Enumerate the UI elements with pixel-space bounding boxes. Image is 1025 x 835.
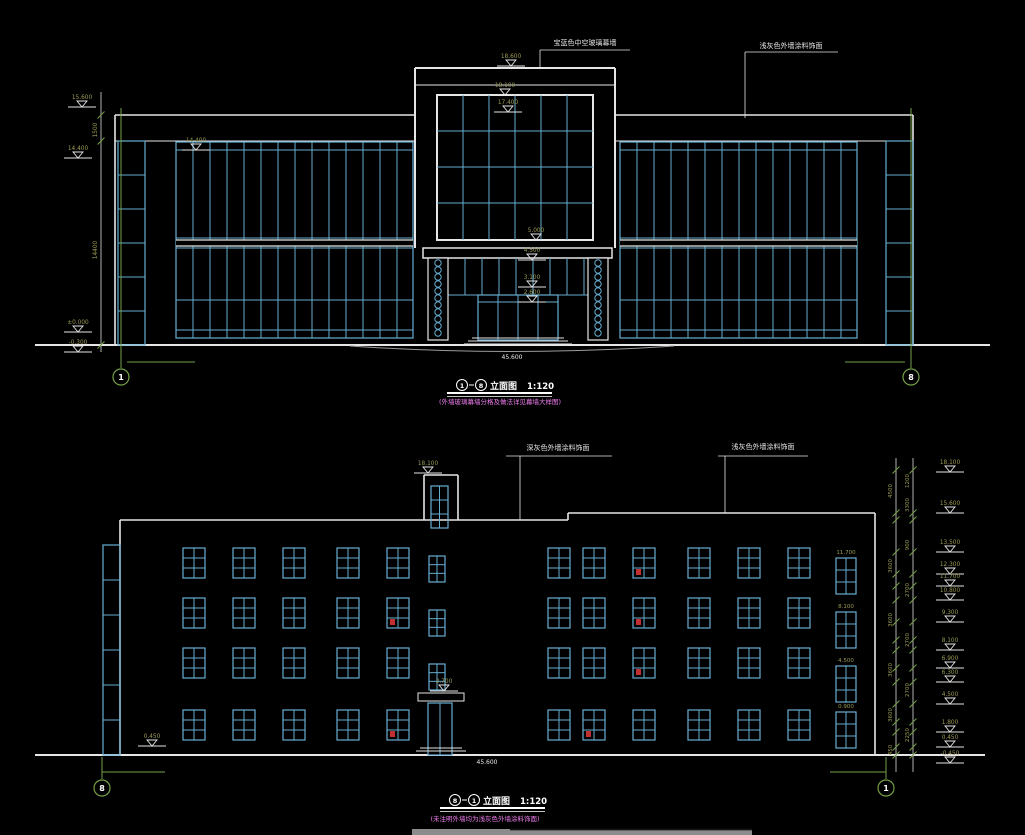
facade-ladder — [886, 141, 913, 345]
dim-text: 2700 — [905, 583, 911, 597]
dim-text: 14400 — [93, 240, 99, 259]
window — [183, 598, 205, 628]
dim-text: 3600 — [888, 708, 894, 722]
top-elevation-labels: 宝蓝色中空玻璃幕墙 浅灰色外墙涂料饰面 1 8 1 8 立面图 1:120 (外… — [118, 38, 914, 406]
dim-text: 2700 — [905, 633, 911, 647]
bottom-gray-bar — [412, 829, 752, 835]
entrance-column — [428, 258, 448, 340]
window — [583, 548, 605, 578]
level-marker: 17.400 — [494, 100, 522, 112]
window — [183, 710, 205, 740]
axis-bubble-label-1b: 1 — [883, 784, 889, 793]
window — [548, 598, 570, 628]
level-triangle — [503, 106, 513, 112]
level-marker: 6.300 — [936, 670, 964, 682]
window — [688, 648, 710, 678]
level-triangle — [77, 101, 87, 107]
axis-bubble-label-1: 1 — [118, 373, 124, 382]
level-value: 17.400 — [498, 100, 519, 106]
window — [836, 558, 856, 594]
window — [233, 710, 255, 740]
level-value: 0.450 — [144, 734, 161, 740]
level-value: 18.100 — [495, 83, 516, 89]
window — [548, 648, 570, 678]
bottom-elevation-title: 立面图 — [483, 795, 510, 807]
level-value: 14.400 — [186, 138, 207, 144]
level-value: 15.600 — [940, 501, 961, 507]
level-marker: 4.500 — [936, 692, 964, 704]
window — [688, 710, 710, 740]
window — [788, 548, 810, 578]
level-value: 2.600 — [524, 290, 541, 296]
level-value: -0.300 — [69, 340, 88, 346]
dim-text: 2250 — [905, 728, 911, 742]
level-value: 2.700 — [436, 679, 453, 685]
level-value: ±0.000 — [67, 320, 89, 326]
entrance-column — [588, 258, 608, 340]
bottom-elevation-note: (未注明外墙均为浅灰色外墙涂料饰面) — [430, 814, 539, 823]
level-marker: 9.300 — [936, 610, 964, 622]
level-value: 6.300 — [942, 670, 959, 676]
level-value: 6.900 — [942, 656, 959, 662]
dim-text: 4500 — [888, 484, 894, 498]
title-to-digit: 1 — [472, 797, 477, 805]
window — [183, 548, 205, 578]
dim-text: 3600 — [888, 559, 894, 573]
window — [429, 556, 445, 582]
level-value: 13.500 — [940, 540, 961, 546]
level-value: 12.300 — [940, 562, 961, 568]
window — [429, 610, 445, 636]
level-marker: 15.600 — [68, 95, 96, 107]
level-value: 4.500 — [942, 692, 959, 698]
window — [548, 548, 570, 578]
level-marker: 18.600 — [497, 54, 525, 66]
level-marker: 14.400 — [64, 146, 92, 158]
level-value: 14.400 — [68, 146, 89, 152]
window — [633, 710, 655, 740]
window — [583, 598, 605, 628]
dim-text: 1200 — [905, 474, 911, 488]
window — [738, 710, 760, 740]
plaza-arc — [350, 346, 674, 352]
level-triangle — [945, 698, 955, 704]
level-triangle — [73, 326, 83, 332]
level-marker: 5.000 — [522, 228, 550, 240]
dim-text: 4.500 — [838, 658, 854, 664]
red-vent-mark — [636, 669, 641, 675]
drawing-canvas: 15001440015.60014.400±0.000-0.30014.4001… — [0, 0, 1025, 835]
window — [233, 548, 255, 578]
level-triangle — [945, 757, 955, 763]
level-triangle — [945, 676, 955, 682]
dim-text: 900 — [905, 539, 911, 550]
level-marker: 12.300 — [936, 562, 964, 574]
window — [429, 664, 445, 690]
level-marker: 0.450 — [936, 735, 964, 747]
window — [688, 598, 710, 628]
window — [283, 548, 305, 578]
level-value: 1.800 — [942, 720, 959, 726]
level-triangle — [73, 346, 83, 352]
window — [387, 548, 409, 578]
title-from-digit: 1 — [460, 382, 465, 390]
window — [836, 612, 856, 648]
window — [337, 710, 359, 740]
window — [788, 710, 810, 740]
dim-text: 450 — [888, 744, 894, 755]
bottom-annotation-left: 深灰色外墙涂料饰面 — [527, 443, 590, 452]
level-marker: 8.100 — [936, 638, 964, 650]
level-marker: 6.900 — [936, 656, 964, 668]
red-vent-mark — [390, 619, 395, 625]
level-value: 3.100 — [524, 275, 541, 281]
level-marker: 0.450 — [138, 734, 166, 746]
level-marker: 18.100 — [414, 461, 442, 473]
cad-sheet: 15001440015.60014.400±0.000-0.30014.4001… — [0, 0, 1025, 835]
level-value: 8.100 — [942, 638, 959, 644]
window — [688, 548, 710, 578]
window — [836, 666, 856, 702]
top-elevation-scale: 1:120 — [527, 382, 554, 392]
tower-window — [431, 486, 448, 528]
bottom-elevation-scale: 1:120 — [520, 797, 547, 807]
level-triangle — [945, 580, 955, 586]
top-annotation-left: 宝蓝色中空玻璃幕墙 — [554, 38, 617, 47]
facade-ladder — [118, 141, 145, 345]
level-marker: 15.600 — [936, 501, 964, 513]
window — [548, 710, 570, 740]
level-triangle — [423, 467, 433, 473]
level-value: 4.500 — [524, 248, 541, 254]
window — [337, 548, 359, 578]
window — [283, 598, 305, 628]
facade-ladder — [103, 545, 120, 755]
window — [583, 648, 605, 678]
top-elevation-note: (外墙玻璃幕墙分格及做法详见幕墙大样图) — [439, 397, 561, 406]
level-triangle — [945, 741, 955, 747]
level-value: 5.000 — [528, 228, 545, 234]
top-annotation-right: 浅灰色外墙涂料饰面 — [760, 41, 823, 50]
level-value: 0.450 — [942, 735, 959, 741]
level-value: 18.600 — [501, 54, 522, 60]
red-vent-mark — [636, 619, 641, 625]
level-marker: 2.700 — [430, 679, 458, 691]
dim-text: 11.700 — [836, 550, 856, 556]
bottom-overall-width: 45.600 — [477, 759, 498, 766]
level-triangle — [945, 616, 955, 622]
level-marker: -0.450 — [936, 751, 964, 763]
window — [387, 648, 409, 678]
level-marker: 18.100 — [491, 83, 519, 95]
window — [337, 598, 359, 628]
red-vent-mark — [636, 569, 641, 575]
bottom-annotation-right: 浅灰色外墙涂料饰面 — [732, 442, 795, 451]
window — [738, 548, 760, 578]
bottom-elevation-labels: 深灰色外墙涂料饰面 浅灰色外墙涂料饰面 8 1 8 1 立面图 1:120 (未… — [99, 442, 889, 823]
window — [283, 648, 305, 678]
top-elevation-title: 立面图 — [490, 380, 517, 392]
dim-text: 3600 — [888, 613, 894, 627]
level-value: 9.300 — [942, 610, 959, 616]
window — [233, 598, 255, 628]
level-triangle — [945, 662, 955, 668]
window — [738, 598, 760, 628]
title-from-digit: 8 — [453, 797, 458, 805]
level-triangle — [945, 507, 955, 513]
window — [183, 648, 205, 678]
dim-text: 3300 — [905, 498, 911, 512]
slab-band — [620, 240, 857, 246]
level-value: 15.600 — [72, 95, 93, 101]
entrance-canopy — [423, 248, 612, 258]
level-marker: 13.500 — [936, 540, 964, 552]
dim-text: 0.900 — [838, 704, 854, 710]
red-vent-mark — [390, 731, 395, 737]
level-value: -0.450 — [941, 751, 960, 757]
level-triangle — [945, 546, 955, 552]
window — [738, 648, 760, 678]
title-to-digit: 8 — [479, 382, 484, 390]
axis-bubble-label-8: 8 — [908, 373, 914, 382]
bottom-elevation-linework — [35, 456, 985, 796]
level-triangle — [506, 60, 516, 66]
level-triangle — [945, 594, 955, 600]
dim-text: 3600 — [888, 663, 894, 677]
window — [337, 648, 359, 678]
top-overall-width: 45.600 — [502, 354, 523, 361]
level-marker: 1.800 — [936, 720, 964, 732]
level-marker: 14.400 — [182, 138, 210, 150]
level-triangle — [147, 740, 157, 746]
window — [788, 598, 810, 628]
level-marker: 18.100 — [936, 460, 964, 472]
dim-text: 1500 — [93, 122, 99, 137]
window — [233, 648, 255, 678]
level-value: 18.100 — [940, 460, 961, 466]
level-marker: 10.800 — [936, 588, 964, 600]
window — [788, 648, 810, 678]
door-canopy — [418, 693, 464, 701]
level-marker: ±0.000 — [64, 320, 92, 332]
level-value: 10.800 — [940, 588, 961, 594]
dim-text: 8.100 — [838, 604, 854, 610]
level-triangle — [73, 152, 83, 158]
level-triangle — [527, 281, 537, 287]
level-triangle — [945, 644, 955, 650]
level-triangle — [945, 726, 955, 732]
dimension-annotations: 15001440015.60014.400±0.000-0.30014.4001… — [64, 54, 964, 772]
window — [283, 710, 305, 740]
red-vent-mark — [586, 731, 591, 737]
level-triangle — [945, 466, 955, 472]
level-value: 18.100 — [418, 461, 439, 467]
axis-bubble-label-8b: 8 — [99, 784, 105, 793]
level-marker: 11.700 — [936, 574, 964, 586]
level-value: 11.700 — [940, 574, 961, 580]
window — [836, 712, 856, 748]
dim-text: 2700 — [905, 683, 911, 697]
slab-band — [176, 240, 413, 246]
level-marker: 3.100 — [518, 275, 546, 287]
